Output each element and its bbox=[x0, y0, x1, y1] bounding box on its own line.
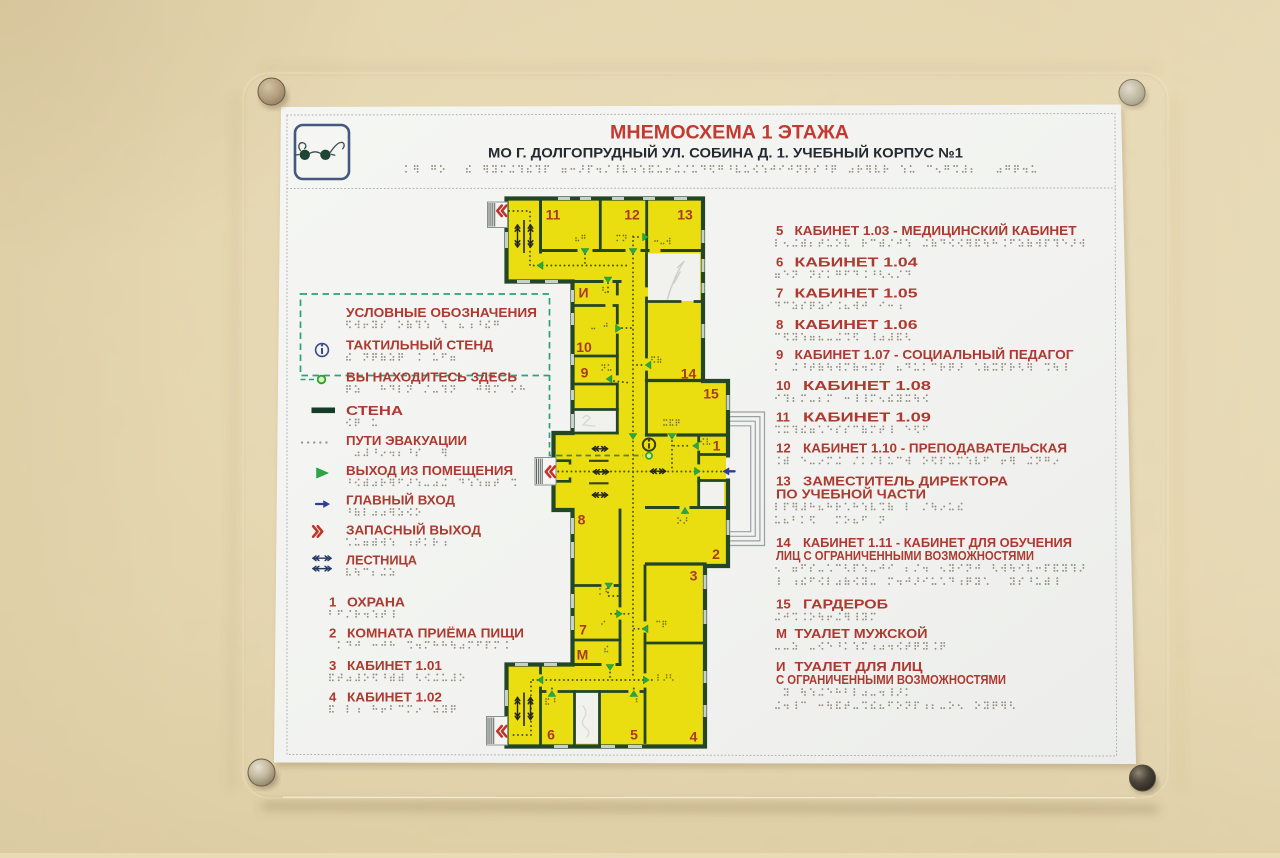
svg-text:3: 3 bbox=[690, 568, 698, 584]
svg-text:КАБИНЕТ 1.04: КАБИНЕТ 1.04 bbox=[795, 254, 919, 269]
svg-text:М: М bbox=[776, 626, 787, 641]
svg-text:11: 11 bbox=[546, 207, 561, 223]
svg-text:2: 2 bbox=[712, 546, 720, 562]
svg-text:КАБИНЕТ 1.09: КАБИНЕТ 1.09 bbox=[803, 409, 931, 424]
svg-text:13: 13 bbox=[677, 207, 693, 223]
svg-text:8: 8 bbox=[578, 512, 586, 528]
svg-text:ОХРАНА: ОХРАНА bbox=[347, 595, 405, 610]
svg-text:УСЛОВНЫЕ ОБОЗНАЧЕНИЯ: УСЛОВНЫЕ ОБОЗНАЧЕНИЯ bbox=[346, 305, 537, 320]
svg-text:ГЛАВНЫЙ ВХОД: ГЛАВНЫЙ ВХОД bbox=[346, 493, 456, 508]
svg-text:10: 10 bbox=[776, 378, 791, 393]
svg-text:КАБИНЕТ 1.03 - МЕДИЦИНСКИЙ КАБ: КАБИНЕТ 1.03 - МЕДИЦИНСКИЙ КАБИНЕТ bbox=[795, 223, 1077, 238]
svg-text:4: 4 bbox=[690, 729, 698, 745]
svg-text:10: 10 bbox=[576, 339, 592, 355]
svg-text:1: 1 bbox=[713, 438, 721, 454]
svg-text:КАБИНЕТ 1.01: КАБИНЕТ 1.01 bbox=[347, 658, 442, 673]
svg-text:КАБИНЕТ 1.02: КАБИНЕТ 1.02 bbox=[347, 690, 442, 705]
svg-text:9: 9 bbox=[776, 347, 783, 362]
svg-text:15: 15 bbox=[776, 597, 791, 612]
svg-text:7: 7 bbox=[579, 622, 587, 638]
svg-text:КАБИНЕТ 1.07 - СОЦИАЛЬНЫЙ ПЕДА: КАБИНЕТ 1.07 - СОЦИАЛЬНЫЙ ПЕДАГОГ bbox=[795, 347, 1075, 362]
svg-text:СТЕНА: СТЕНА bbox=[346, 403, 404, 418]
svg-text:1: 1 bbox=[329, 595, 336, 610]
svg-text:ПУТИ ЭВАКУАЦИИ: ПУТИ ЭВАКУАЦИИ bbox=[346, 433, 467, 448]
svg-text:2: 2 bbox=[329, 626, 336, 641]
svg-text:КАБИНЕТ 1.10 - ПРЕПОДАВАТЕЛЬСК: КАБИНЕТ 1.10 - ПРЕПОДАВАТЕЛЬСКАЯ bbox=[803, 441, 1067, 456]
svg-text:И: И bbox=[578, 285, 588, 301]
svg-text:ВЫ НАХОДИТЕСЬ ЗДЕСЬ: ВЫ НАХОДИТЕСЬ ЗДЕСЬ bbox=[346, 370, 518, 385]
svg-text:8: 8 bbox=[776, 317, 783, 332]
svg-text:ПО УЧЕБНОЙ ЧАСТИ: ПО УЧЕБНОЙ ЧАСТИ bbox=[776, 487, 926, 502]
svg-text:КАБИНЕТ 1.08: КАБИНЕТ 1.08 bbox=[803, 378, 931, 393]
svg-text:4: 4 bbox=[329, 690, 337, 705]
svg-text:ГАРДЕРОБ: ГАРДЕРОБ bbox=[803, 597, 889, 612]
svg-text:6: 6 bbox=[776, 254, 783, 269]
svg-text:КАБИНЕТ 1.05: КАБИНЕТ 1.05 bbox=[795, 286, 918, 301]
svg-text:ЗАПАСНЫЙ ВЫХОД: ЗАПАСНЫЙ ВЫХОД bbox=[346, 523, 482, 538]
svg-text:15: 15 bbox=[703, 386, 719, 402]
svg-text:ВЫХОД ИЗ ПОМЕЩЕНИЯ: ВЫХОД ИЗ ПОМЕЩЕНИЯ bbox=[346, 463, 513, 478]
svg-text:12: 12 bbox=[776, 441, 791, 456]
svg-text:5: 5 bbox=[776, 223, 783, 238]
svg-text:КОМНАТА ПРИЁМА ПИЩИ: КОМНАТА ПРИЁМА ПИЩИ bbox=[347, 626, 524, 641]
svg-text:ТАКТИЛЬНЫЙ СТЕНД: ТАКТИЛЬНЫЙ СТЕНД bbox=[346, 338, 494, 353]
svg-text:МО Г. ДОЛГОПРУДНЫЙ УЛ. СОБИНА: МО Г. ДОЛГОПРУДНЫЙ УЛ. СОБИНА Д. 1. УЧЕБ… bbox=[488, 144, 963, 161]
svg-text:КАБИНЕТ 1.06: КАБИНЕТ 1.06 bbox=[795, 317, 918, 332]
svg-text:5: 5 bbox=[630, 727, 638, 743]
svg-text:3: 3 bbox=[329, 658, 336, 673]
svg-text:9: 9 bbox=[581, 365, 589, 381]
svg-text:7: 7 bbox=[776, 286, 783, 301]
svg-text:12: 12 bbox=[624, 207, 640, 223]
svg-text:С ОГРАНИЧЕННЫМИ ВОЗМОЖНОСТЯМИ: С ОГРАНИЧЕННЫМИ ВОЗМОЖНОСТЯМИ bbox=[776, 672, 1006, 687]
svg-text:М: М bbox=[577, 647, 589, 663]
svg-text:11: 11 bbox=[776, 409, 790, 424]
svg-text:ТУАЛЕТ МУЖСКОЙ: ТУАЛЕТ МУЖСКОЙ bbox=[795, 626, 928, 641]
svg-text:ЛЕСТНИЦА: ЛЕСТНИЦА bbox=[346, 553, 417, 568]
svg-text:ЛИЦ С ОГРАНИЧЕННЫМИ ВОЗМОЖНОСТ: ЛИЦ С ОГРАНИЧЕННЫМИ ВОЗМОЖНОСТЯМИ bbox=[776, 548, 1034, 563]
svg-text:14: 14 bbox=[681, 366, 697, 382]
svg-text:6: 6 bbox=[547, 727, 555, 743]
svg-text:МНЕМОСХЕМА 1 ЭТАЖА: МНЕМОСХЕМА 1 ЭТАЖА bbox=[610, 122, 849, 144]
